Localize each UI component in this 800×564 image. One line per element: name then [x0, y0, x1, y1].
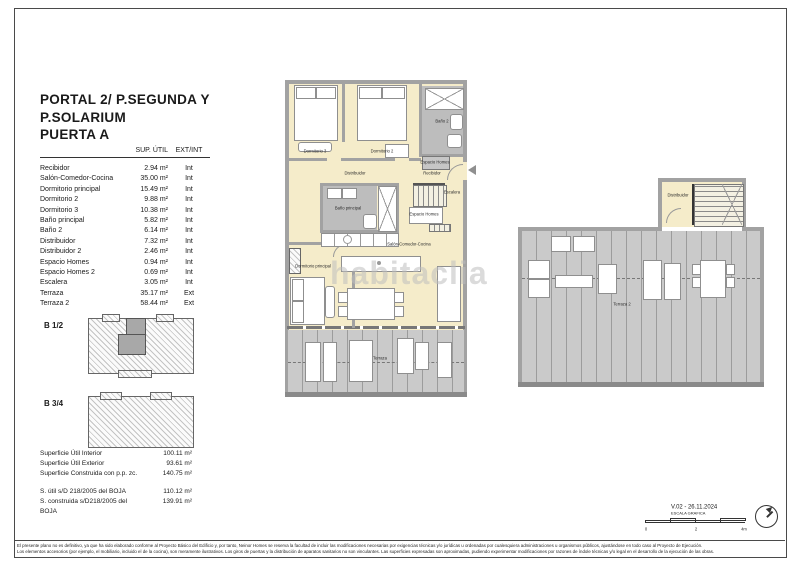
- room-label-espacio-homes2: Espacio Homes: [409, 212, 438, 217]
- wall: [285, 80, 289, 330]
- kitchen-sink: [343, 235, 352, 244]
- wall: [289, 158, 327, 161]
- table-row: Terraza35.17 m²Ext: [40, 289, 210, 299]
- terrace-lounger: [437, 342, 452, 378]
- key-plan-b12-tab: [118, 370, 152, 378]
- watermark: habitaclia: [330, 255, 488, 292]
- wall: [342, 84, 345, 142]
- table-row: Dormitorio principal15.49 m²Int: [40, 185, 210, 195]
- room-label-salon: Salón-Comedor-Cocina: [387, 242, 430, 247]
- highlighted-unit: [118, 334, 146, 355]
- chair: [726, 277, 735, 288]
- wall: [760, 227, 764, 384]
- solarium-floor-plan: Distribuidor Terraza 2: [518, 178, 764, 394]
- table-row: Recibidor2.94 m²Int: [40, 164, 210, 174]
- wall: [518, 227, 522, 384]
- summary-row: S. útil s/D 218/2005 del BOJA110.12 m²: [40, 487, 192, 497]
- room-label-distribuidor: Distribuidor: [344, 171, 365, 176]
- terrace-lounger: [643, 260, 662, 300]
- table-row: Distribuidor7.32 m²Int: [40, 237, 210, 247]
- furniture-pillow: [296, 87, 316, 99]
- summary-row: Superficie Útil Interior100.11 m²: [40, 449, 192, 459]
- legal-disclaimer-line1: El presente plano no es definitivo, ya q…: [17, 543, 702, 548]
- title-line-2: P.SOLARIUM: [40, 109, 210, 127]
- wall: [419, 84, 422, 157]
- toilet: [447, 134, 462, 148]
- summary-row: S. construida s/D218/2005 del BOJA139.91…: [40, 497, 192, 517]
- terrace-sofa: [573, 236, 595, 252]
- wall: [518, 227, 658, 231]
- room-label-dormitorio3: Dormitorio 3: [304, 149, 327, 154]
- wardrobe: [289, 248, 301, 274]
- furniture-pillow: [292, 301, 304, 323]
- main-floor-plan: Dormitorio 3 Dormitorio 2 Baño 2 Espacio…: [285, 80, 472, 402]
- wall: [518, 382, 764, 387]
- table-row: Terraza 258.44 m²Ext: [40, 299, 210, 309]
- room-label-recibidor: Recibidor: [423, 171, 441, 176]
- room-label-escalera: Escalera: [444, 190, 460, 195]
- wall: [285, 392, 467, 397]
- wall: [658, 178, 662, 231]
- chair: [338, 306, 348, 317]
- wall: [341, 158, 395, 161]
- shower: [425, 88, 464, 110]
- terrace-lounger: [305, 342, 321, 382]
- terrace-lounger: [397, 338, 414, 374]
- scale-label: ESCALA GRAFICA: [671, 511, 705, 516]
- table-row: Distribuidor 22.46 m²Int: [40, 247, 210, 257]
- table-row: Baño principal5.82 m²Int: [40, 216, 210, 226]
- stair-winders: [722, 184, 742, 225]
- chair: [394, 306, 404, 317]
- wall: [285, 330, 288, 397]
- furniture-pillow: [359, 87, 382, 99]
- north-arrow-icon: [755, 505, 778, 528]
- terrace-dining-table: [700, 260, 726, 298]
- surface-summary: Superficie Útil Interior100.11 m² Superf…: [40, 449, 192, 478]
- version-date: V.02 - 26.11.2024: [671, 503, 717, 510]
- toilet: [363, 214, 377, 229]
- room-label-terraza: Terraza: [373, 356, 387, 361]
- title-line-1: PORTAL 2/ P.SEGUNDA Y: [40, 91, 210, 109]
- wall: [409, 158, 421, 161]
- table-row: Baño 26.14 m²Int: [40, 226, 210, 236]
- terrace-low-table: [555, 275, 593, 288]
- key-plan-b12-label: B 1/2: [44, 321, 63, 330]
- furniture-pillow: [292, 279, 304, 301]
- terrace-table: [349, 340, 373, 382]
- footer-divider: [14, 540, 785, 541]
- summary-row: Superficie Útil Exterior93.61 m²: [40, 459, 192, 469]
- sink: [450, 114, 463, 130]
- terrace2-floor: [522, 231, 760, 382]
- room-label-bano-principal: Baño principal: [335, 206, 361, 211]
- summary-row: Superficie Construida con p.p. zc.140.75…: [40, 469, 192, 479]
- table-row: Escalera3.05 m²Int: [40, 278, 210, 288]
- stairs: [413, 185, 447, 207]
- furniture-pillow: [382, 87, 405, 99]
- key-plan-b34-label: B 3/4: [44, 399, 63, 408]
- furniture-pillow: [316, 87, 336, 99]
- glazing-wall: [287, 326, 465, 329]
- shelf: [429, 224, 451, 232]
- key-plan-b34: [88, 396, 194, 448]
- table-row: Salón-Comedor-Cocina35.00 m²Int: [40, 174, 210, 184]
- table-row: Espacio Homes 20.69 m²Int: [40, 268, 210, 278]
- legal-disclaimer-line2: Los elementos accesorios (por ejemplo, e…: [17, 549, 714, 554]
- room-label-bano2: Baño 2: [435, 119, 448, 124]
- area-table: SUP. ÚTIL EXT/INT Recibidor2.94 m²Int Sa…: [40, 147, 210, 310]
- wall: [285, 80, 467, 84]
- chair: [394, 292, 404, 303]
- chair: [692, 264, 701, 275]
- area-table-header: SUP. ÚTIL EXT/INT: [40, 147, 210, 158]
- terrace-lounger: [528, 260, 550, 279]
- plan-sheet: PORTAL 2/ P.SEGUNDA Y P.SOLARIUM PUERTA …: [0, 0, 800, 564]
- table-row: Dormitorio 29.88 m²Int: [40, 195, 210, 205]
- wall: [464, 330, 467, 397]
- room-label-dormitorio-principal: Dormitorio principal: [295, 264, 331, 269]
- scale-tick-2: 2: [695, 527, 697, 532]
- terrace-chair: [598, 264, 617, 294]
- page-title: PORTAL 2/ P.SEGUNDA Y P.SOLARIUM PUERTA …: [40, 91, 210, 144]
- scale-tick-4m: 4m: [741, 527, 747, 532]
- stair-edge: [692, 184, 694, 225]
- table-row: Espacio Homes0.94 m²Int: [40, 258, 210, 268]
- dining-table: [347, 288, 395, 320]
- room-label-dormitorio2: Dormitorio 2: [371, 149, 394, 154]
- key-plan-b34-tab: [100, 392, 122, 400]
- scale-tick-0: 0: [645, 527, 647, 532]
- key-plan-b12-tab: [156, 314, 174, 322]
- terrace-plant: [415, 342, 429, 370]
- chair: [726, 264, 735, 275]
- terrace-lounger: [323, 342, 337, 382]
- sink: [342, 188, 357, 199]
- table-row: Dormitorio 310.38 m²Int: [40, 206, 210, 216]
- room-label-terraza2: Terraza 2: [613, 302, 630, 307]
- scale-bar: [645, 518, 745, 524]
- entry-arrow-icon: [468, 165, 476, 175]
- room-label-distribuidor2: Distribuidor: [667, 193, 688, 198]
- terrace-sofa: [551, 236, 571, 252]
- sink: [327, 188, 342, 199]
- title-line-3: PUERTA A: [40, 126, 210, 144]
- boja-summary: S. útil s/D 218/2005 del BOJA110.12 m² S…: [40, 487, 192, 516]
- chair: [692, 277, 701, 288]
- key-plan-b12-tab: [102, 314, 120, 322]
- col-header-ext-int: EXT/INT: [168, 147, 210, 154]
- shower: [378, 186, 397, 232]
- terrace-lounger: [664, 263, 681, 300]
- col-header-sup-util: SUP. ÚTIL: [116, 147, 168, 154]
- chair: [338, 292, 348, 303]
- room-label-espacio-homes: Espacio Homes: [420, 160, 449, 165]
- key-plan-b34-tab: [150, 392, 172, 400]
- wall: [320, 183, 323, 233]
- terrace-lounger: [528, 279, 550, 298]
- wall: [658, 178, 746, 182]
